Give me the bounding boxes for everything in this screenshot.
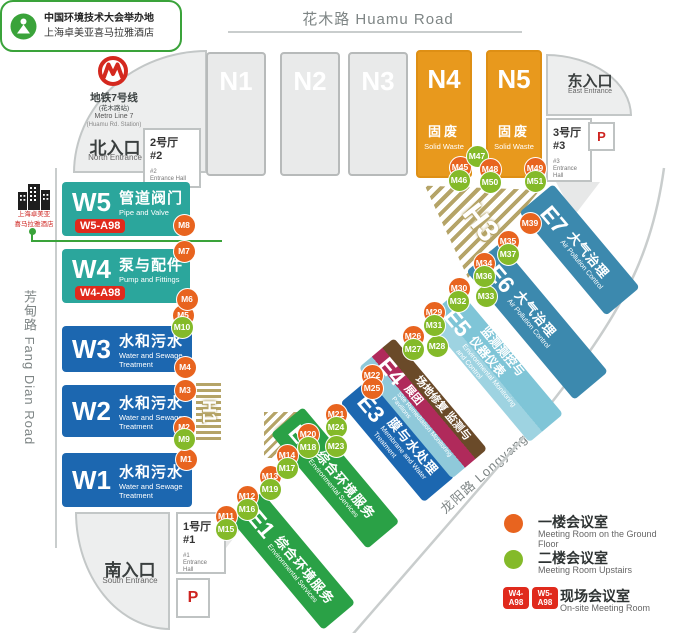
hall-n1[interactable]: N1 xyxy=(206,52,266,176)
metro-logo-icon xyxy=(96,54,130,88)
hall1-sub-en: Entrance Hall xyxy=(183,560,219,574)
hall2-number: #2 xyxy=(150,150,194,162)
marker-m39[interactable]: M39 xyxy=(519,212,542,235)
hall3-sub-number: #3 xyxy=(553,159,585,166)
hall-w5-onsite-badge: W5-A98 xyxy=(75,219,125,233)
marker-m4[interactable]: M4 xyxy=(174,356,197,379)
legend-upstairs-dot xyxy=(504,550,523,569)
hall-w5-code: W5 xyxy=(72,187,111,218)
hall2-label-zh: 2号厅 xyxy=(150,134,194,150)
marker-m1[interactable]: M1 xyxy=(175,448,198,471)
zone-h1[interactable]: H1 xyxy=(196,383,221,440)
hall-w1-code: W1 xyxy=(72,465,111,496)
hall3-label-zh: 3号厅 xyxy=(553,124,585,140)
hall-n5-theme-zh: 固废 xyxy=(498,121,530,140)
marker-m10[interactable]: M10 xyxy=(171,316,194,339)
hall-w4-theme-en: Pump and Fittings xyxy=(119,275,195,284)
hall-n4-theme-zh: 固废 xyxy=(428,121,460,140)
hotel-name: 上海卓美亚 喜马拉雅酒店 xyxy=(4,210,64,230)
marker-m9[interactable]: M9 xyxy=(173,428,196,451)
hall1-label-zh: 1号厅 xyxy=(183,518,219,534)
marker-m33[interactable]: M33 xyxy=(475,285,498,308)
hall1-number: #1 xyxy=(183,534,219,546)
metro-line-zh: 地铁7号线 xyxy=(68,92,160,105)
hall1-sub-number: #1 xyxy=(183,553,219,560)
marker-m50[interactable]: M50 xyxy=(479,171,502,194)
entrance-hall-3[interactable]: 3号厅 #3 #3 Entrance Hall xyxy=(546,118,592,182)
hall-w5-theme-zh: 管道阀门 xyxy=(119,187,195,208)
hall3-number: #3 xyxy=(553,140,585,152)
marker-m19[interactable]: M19 xyxy=(259,478,282,501)
metro-station-label: 地铁7号线 (花木路站) Metro Line 7 (Huamu Rd. Sta… xyxy=(68,92,160,130)
hall-w4[interactable]: W4 泵与配件 Pump and Fittings W4-A98 xyxy=(62,249,190,303)
legend-onsite-badge-w4: W4-A98 xyxy=(503,587,529,609)
hall-w1[interactable]: W1 水和污水 Water and Sewage Treatment xyxy=(62,453,192,507)
marker-m6[interactable]: M6 xyxy=(176,288,199,311)
hall2-sub-number: #2 xyxy=(150,169,194,176)
marker-m17[interactable]: M17 xyxy=(276,457,299,480)
hall-w4-onsite-badge: W4-A98 xyxy=(75,286,125,300)
marker-m37[interactable]: M37 xyxy=(497,243,520,266)
hall-w1-theme-en: Water and Sewage Treatment xyxy=(119,482,195,500)
hotel-name-line1: 上海卓美亚 xyxy=(4,210,64,220)
hall-n3[interactable]: N3 xyxy=(348,52,408,176)
hall-n2-code: N2 xyxy=(293,66,326,97)
hall-w3-code: W3 xyxy=(72,334,111,365)
east-entrance-label-en: East Entrance xyxy=(552,88,628,95)
parking-south[interactable]: P xyxy=(176,578,210,618)
callout-subtitle: 上海卓美亚喜马拉雅酒店 xyxy=(44,26,154,41)
callout-title: 中国环境技术大会举办地 xyxy=(44,11,154,26)
marker-m16[interactable]: M16 xyxy=(236,498,259,521)
marker-m8[interactable]: M8 xyxy=(173,214,196,237)
huamu-road-label: 花木路 Huamu Road xyxy=(278,8,478,29)
marker-m51[interactable]: M51 xyxy=(524,170,547,193)
hall-w5[interactable]: W5 管道阀门 Pipe and Valve W5-A98 xyxy=(62,182,190,236)
hall-n1-code: N1 xyxy=(219,66,252,97)
conference-icon xyxy=(10,13,37,40)
hall-n5-code: N5 xyxy=(497,64,530,95)
hall3-sub-en: Entrance Hall xyxy=(553,166,585,180)
marker-m7[interactable]: M7 xyxy=(173,240,196,263)
hotel-icon xyxy=(15,182,53,210)
marker-m28[interactable]: M28 xyxy=(426,335,449,358)
hall-w4-code: W4 xyxy=(72,254,111,285)
south-entrance-label-en: South Entrance xyxy=(85,576,175,585)
legend-upstairs-en: Meeting Room Upstairs xyxy=(538,565,632,575)
marker-m46[interactable]: M46 xyxy=(448,169,471,192)
parking-east[interactable]: P xyxy=(588,122,615,151)
marker-m23[interactable]: M23 xyxy=(325,435,348,458)
conference-venue-callout: 中国环境技术大会举办地 上海卓美亚喜马拉雅酒店 xyxy=(0,0,182,52)
hall-n3-code: N3 xyxy=(361,66,394,97)
marker-m3[interactable]: M3 xyxy=(174,379,197,402)
hall-n4-theme-en: Solid Waste xyxy=(424,142,464,151)
marker-m18[interactable]: M18 xyxy=(297,436,320,459)
marker-m36[interactable]: M36 xyxy=(473,265,496,288)
hall-n2[interactable]: N2 xyxy=(280,52,340,176)
hall-w2-code: W2 xyxy=(72,396,111,427)
fangdian-road-label: 芳甸路 Fang Dian Road xyxy=(20,290,39,460)
metro-line-en: Metro Line 7 xyxy=(68,113,160,122)
marker-m31[interactable]: M31 xyxy=(423,314,446,337)
marker-m32[interactable]: M32 xyxy=(447,290,470,313)
legend-onsite-badge-w5: W5-A98 xyxy=(532,587,558,609)
zone-h1-code: H1 xyxy=(198,400,219,423)
marker-m27[interactable]: M27 xyxy=(402,338,425,361)
huamu-road-line xyxy=(228,31,522,33)
marker-m15[interactable]: M15 xyxy=(215,518,238,541)
marker-m25[interactable]: M25 xyxy=(361,377,384,400)
legend-ground-floor-en: Meeting Room on the Ground Floor xyxy=(538,529,677,549)
hall-n5-theme-en: Solid Waste xyxy=(494,142,534,151)
entrance-hall-2[interactable]: 2号厅 #2 #2 Entrance Hall xyxy=(143,128,201,188)
expo-floor-map: 花木路 Huamu Road 芳甸路 Fang Dian Road 龙阳路 Lo… xyxy=(0,0,677,633)
legend-onsite-en: On-site Meeting Room xyxy=(560,603,650,613)
metro-station-zh: (花木路站) xyxy=(68,105,160,113)
legend-ground-floor-dot xyxy=(504,514,523,533)
hotel-connector-line xyxy=(31,240,222,242)
hall-n4-code: N4 xyxy=(427,64,460,95)
